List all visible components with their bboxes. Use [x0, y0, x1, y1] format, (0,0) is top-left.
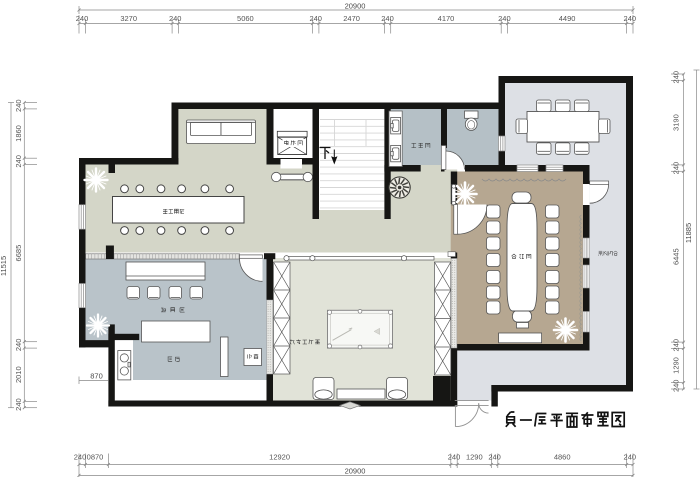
svg-text:4490: 4490: [559, 14, 576, 23]
svg-text:240: 240: [671, 162, 680, 175]
svg-text:240: 240: [671, 339, 680, 352]
svg-text:240: 240: [498, 14, 511, 23]
svg-text:11515: 11515: [0, 256, 8, 276]
svg-text:1860: 1860: [14, 125, 23, 142]
svg-text:240: 240: [488, 453, 501, 462]
svg-text:12920: 12920: [269, 453, 290, 462]
svg-text:20900: 20900: [345, 466, 366, 475]
svg-text:3190: 3190: [671, 114, 680, 131]
svg-text:1290: 1290: [671, 357, 680, 374]
svg-text:240: 240: [76, 14, 89, 23]
svg-text:1290: 1290: [466, 453, 483, 462]
svg-text:240: 240: [671, 71, 680, 84]
svg-text:240: 240: [169, 14, 182, 23]
svg-text:4860: 4860: [554, 453, 571, 462]
svg-text:2470: 2470: [343, 14, 360, 23]
svg-text:0870: 0870: [87, 453, 104, 462]
svg-text:240: 240: [14, 155, 23, 168]
svg-text:5060: 5060: [237, 14, 254, 23]
svg-text:240: 240: [624, 14, 637, 23]
svg-text:11885: 11885: [684, 223, 693, 243]
svg-text:240: 240: [624, 453, 637, 462]
svg-text:240: 240: [14, 339, 23, 352]
svg-text:240: 240: [448, 453, 461, 462]
svg-text:240: 240: [14, 398, 23, 411]
svg-text:3270: 3270: [120, 14, 137, 23]
svg-text:240: 240: [14, 99, 23, 112]
svg-text:240: 240: [74, 453, 87, 462]
svg-text:2010: 2010: [14, 366, 23, 383]
svg-text:6445: 6445: [671, 248, 680, 265]
svg-text:20900: 20900: [345, 2, 366, 11]
svg-text:240: 240: [309, 14, 322, 23]
svg-text:870: 870: [90, 372, 103, 381]
svg-text:240: 240: [381, 14, 394, 23]
svg-text:6685: 6685: [14, 245, 23, 262]
svg-text:4170: 4170: [438, 14, 455, 23]
svg-text:240: 240: [671, 380, 680, 393]
